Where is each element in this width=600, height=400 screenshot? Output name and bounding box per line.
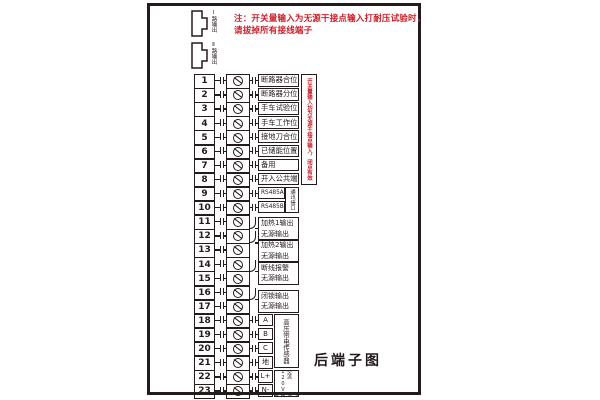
screw-icon	[233, 203, 243, 213]
warning-note-line2: 请拔掉所有接线端子	[234, 25, 312, 37]
hv-sensor-label: 高压带电传感器	[274, 314, 299, 369]
wire-tick	[252, 161, 253, 168]
screw-icon	[233, 386, 243, 396]
terminal-label: 已储能位置	[258, 145, 299, 158]
wire-tick	[220, 331, 221, 338]
wire-tick	[252, 77, 253, 84]
terminal-number: 13	[194, 243, 215, 258]
screw-terminal	[226, 229, 250, 244]
screw-icon	[233, 175, 243, 185]
canvas: Ⅰ路输出 Ⅱ路输出 注：开关量输入为无源干接点输入打耐压试验时， 请拔掉所有接线…	[0, 0, 600, 400]
wire-tick	[220, 119, 221, 126]
terminal-number: 7	[194, 159, 215, 174]
wire-tick	[220, 161, 221, 168]
connector-1-label: Ⅰ路输出	[210, 10, 216, 37]
terminal-number: 14	[194, 257, 215, 272]
wire-tick	[220, 274, 221, 281]
output-group-title: 断线报警	[261, 263, 298, 274]
screw-icon	[233, 119, 243, 129]
terminal-label: 备用	[258, 159, 299, 172]
screw-terminal	[226, 370, 250, 385]
terminal-number: 9	[194, 187, 215, 202]
screw-terminal	[226, 300, 250, 315]
input-valid-note: 开关量输入均为无源干接点输入，闭点有效	[301, 74, 317, 185]
screw-terminal	[226, 201, 250, 216]
wire-tick	[252, 147, 253, 154]
wire-tick	[220, 133, 221, 140]
terminal-label: 手车工作位	[258, 116, 299, 129]
screw-terminal	[226, 130, 250, 145]
output-group-title: 加热2输出	[261, 240, 298, 251]
wire-tick	[252, 190, 253, 197]
wire-tick	[252, 133, 253, 140]
terminal-label: A	[258, 314, 273, 327]
screw-terminal	[226, 116, 250, 131]
screw-icon	[233, 302, 243, 312]
screw-icon	[233, 316, 243, 326]
terminal-number: 11	[194, 215, 215, 230]
wire-tick	[252, 387, 253, 394]
terminal-number: 3	[194, 102, 215, 117]
terminal-label: N-	[258, 384, 273, 397]
wire-tick	[252, 105, 253, 112]
screw-terminal	[226, 314, 250, 329]
power-supply-label: 交流220V装置电源	[274, 370, 299, 397]
screw-icon	[233, 372, 243, 382]
screw-terminal	[226, 159, 250, 174]
screw-icon	[233, 90, 243, 100]
screw-icon	[233, 189, 243, 199]
terminal-label: 地	[258, 356, 273, 369]
power-label-device: 装置电源	[274, 393, 299, 397]
screw-terminal	[226, 145, 250, 160]
wire-tick	[220, 91, 221, 98]
screw-icon	[233, 104, 243, 114]
screw-terminal	[226, 74, 250, 89]
terminal-number: 23	[194, 384, 215, 399]
terminal-number: 4	[194, 116, 215, 131]
wire-tick	[220, 260, 221, 267]
terminal-number: 19	[194, 328, 215, 343]
page: Ⅰ路输出 Ⅱ路输出 注：开关量输入为无源干接点输入打耐压试验时， 请拔掉所有接线…	[147, 3, 421, 395]
screw-terminal	[226, 356, 250, 371]
terminal-label: 接地刀合位	[258, 130, 299, 143]
screw-icon	[233, 217, 243, 227]
wire-tick	[252, 373, 253, 380]
terminal-label: 手车试验位	[258, 102, 299, 115]
wire-tick	[252, 204, 253, 211]
terminal-label: L+	[258, 370, 273, 383]
wire-tick	[252, 345, 253, 352]
screw-icon	[233, 260, 243, 270]
output-group-label: 闭锁输出无源输出	[258, 290, 299, 314]
wire-tick	[252, 119, 253, 126]
screw-terminal	[226, 342, 250, 357]
screw-icon	[233, 76, 243, 86]
screw-terminal	[226, 215, 250, 230]
screw-icon	[233, 161, 243, 171]
output-group-title: 闭锁输出	[261, 291, 298, 302]
wire-tick	[220, 232, 221, 239]
terminal-label: RS485B	[258, 201, 285, 214]
terminal-number: 21	[194, 356, 215, 371]
ethernet-jack-icon-1	[191, 10, 209, 37]
wire-tick	[220, 288, 221, 295]
terminal-number: 17	[194, 300, 215, 315]
terminal-number: 6	[194, 145, 215, 160]
page-title: 后端子图	[314, 350, 382, 370]
screw-terminal	[226, 257, 250, 272]
ethernet-jack-icon-2	[191, 42, 209, 69]
output-group-label: 断线报警无源输出	[258, 261, 299, 285]
screw-icon	[233, 288, 243, 298]
screw-icon	[233, 245, 243, 255]
comm-port-label: 通讯接口	[285, 187, 299, 214]
terminal-label: C	[258, 342, 273, 355]
screw-terminal	[226, 102, 250, 117]
screw-terminal	[226, 187, 250, 202]
terminal-number: 22	[194, 370, 215, 385]
power-label-ac: 交流220V	[280, 370, 293, 393]
screw-icon	[233, 358, 243, 368]
screw-icon	[233, 274, 243, 284]
terminal-number: 15	[194, 271, 215, 286]
wire-tick	[220, 373, 221, 380]
wire-tick	[220, 359, 221, 366]
output-group-subtitle: 无源输出	[261, 229, 298, 240]
screw-icon	[233, 147, 243, 157]
wire-tick	[220, 246, 221, 253]
screw-icon	[233, 344, 243, 354]
terminal-number: 8	[194, 173, 215, 188]
terminal-number: 2	[194, 88, 215, 103]
terminal-number: 20	[194, 342, 215, 357]
output-group-label: 加热1输出无源输出	[258, 217, 299, 241]
screw-icon	[233, 231, 243, 241]
wire-tick	[220, 316, 221, 323]
terminal-number: 5	[194, 130, 215, 145]
output-group-subtitle: 无源输出	[261, 301, 298, 312]
terminal-label: B	[258, 328, 273, 341]
screw-icon	[233, 330, 243, 340]
screw-terminal	[226, 243, 250, 258]
warning-note-line1: 注：开关量输入为无源干接点输入打耐压试验时，	[234, 13, 425, 25]
wire-tick	[220, 204, 221, 211]
wire-tick	[220, 77, 221, 84]
screw-terminal	[226, 271, 250, 286]
terminal-number: 16	[194, 286, 215, 301]
wire-tick	[252, 359, 253, 366]
output-group-label: 加热2输出无源输出	[258, 239, 299, 263]
terminal-label: RS485A	[258, 187, 285, 200]
output-group-title: 加热1输出	[261, 218, 298, 229]
terminal-label: 断路器合位	[258, 74, 299, 87]
wire-tick	[220, 190, 221, 197]
connector-2-label: Ⅱ路输出	[210, 42, 216, 69]
wire-tick	[220, 387, 221, 394]
terminal-number: 12	[194, 229, 215, 244]
screw-terminal	[226, 384, 250, 399]
wire-tick	[220, 175, 221, 182]
wire-tick	[220, 147, 221, 154]
wire-tick	[252, 91, 253, 98]
screw-terminal	[226, 88, 250, 103]
wire-tick	[220, 345, 221, 352]
terminal-number: 10	[194, 201, 215, 216]
screw-terminal	[226, 173, 250, 188]
terminal-number: 1	[194, 74, 215, 89]
screw-icon	[233, 133, 243, 143]
output-group-subtitle: 无源输出	[261, 251, 298, 262]
terminal-label: 断路器分位	[258, 88, 299, 101]
terminal-label: 开入公共端	[258, 173, 299, 186]
output-group-subtitle: 无源输出	[261, 273, 298, 284]
wire-tick	[220, 218, 221, 225]
screw-terminal	[226, 328, 250, 343]
screw-terminal	[226, 286, 250, 301]
wire-tick	[220, 105, 221, 112]
wire-tick	[252, 316, 253, 323]
terminal-number: 18	[194, 314, 215, 329]
wire-tick	[220, 302, 221, 309]
wire-tick	[252, 175, 253, 182]
wire-tick	[252, 331, 253, 338]
